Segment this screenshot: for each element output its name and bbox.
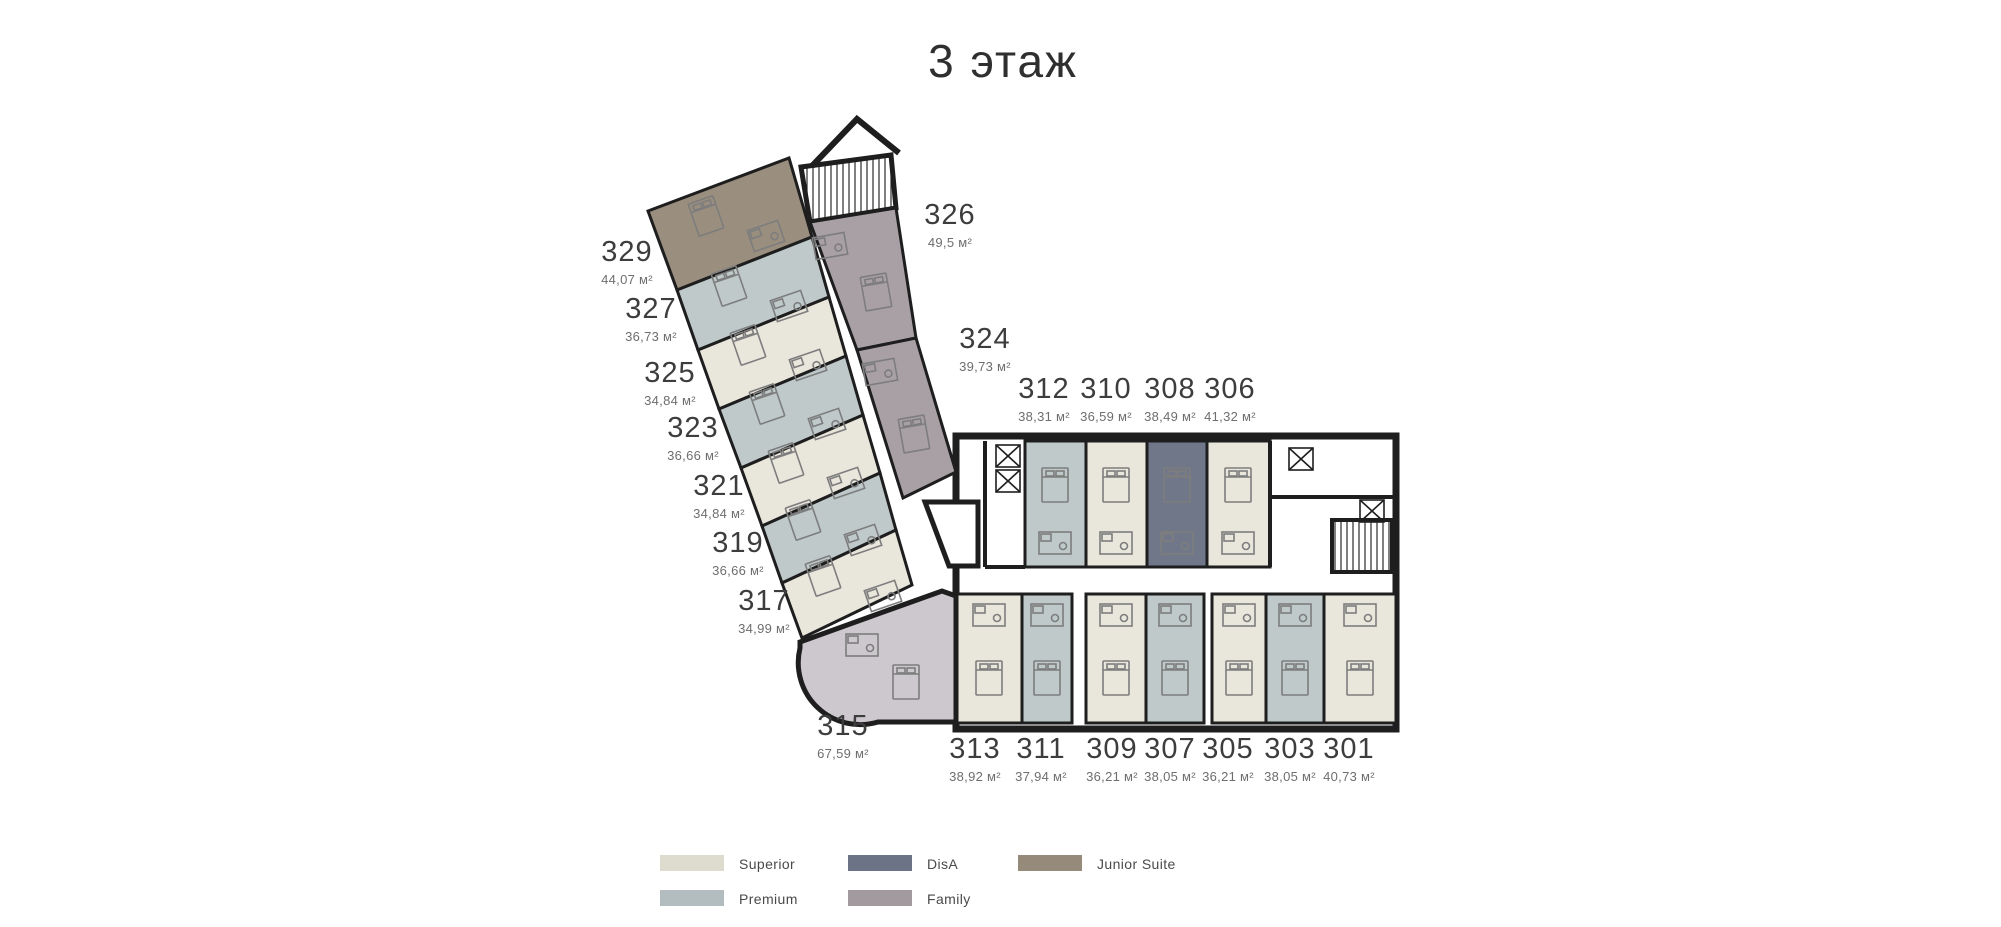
room-area: 36,21 м² bbox=[1202, 769, 1254, 784]
east-wing-top-row bbox=[1025, 441, 1270, 567]
room-label-321[interactable]: 32134,84 м² bbox=[693, 472, 745, 521]
east-wing-bottom-row bbox=[956, 594, 1396, 723]
elevator-icon bbox=[1289, 448, 1313, 470]
room-306-shape[interactable] bbox=[1207, 441, 1270, 567]
room-311-shape[interactable] bbox=[1022, 594, 1072, 723]
room-312-shape[interactable] bbox=[1025, 441, 1086, 567]
room-label-324[interactable]: 32439,73 м² bbox=[959, 325, 1011, 374]
room-area: 38,05 м² bbox=[1264, 769, 1316, 784]
legend-swatch-disa bbox=[848, 855, 912, 871]
legend-swatch-premium bbox=[660, 890, 724, 906]
room-area: 38,49 м² bbox=[1144, 409, 1196, 424]
room-label-317[interactable]: 31734,99 м² bbox=[738, 587, 790, 636]
room-label-310[interactable]: 31036,59 м² bbox=[1080, 375, 1132, 424]
legend-swatch-junior-suite bbox=[1018, 855, 1082, 871]
room-number: 310 bbox=[1080, 375, 1132, 404]
room-label-301[interactable]: 30140,73 м² bbox=[1323, 735, 1375, 784]
room-308-shape[interactable] bbox=[1147, 441, 1207, 567]
legend-label: Superior bbox=[739, 856, 795, 872]
room-313-shape[interactable] bbox=[956, 594, 1022, 723]
room-number: 321 bbox=[693, 472, 745, 501]
room-307-shape[interactable] bbox=[1146, 594, 1204, 723]
room-label-319[interactable]: 31936,66 м² bbox=[712, 529, 764, 578]
room-label-327[interactable]: 32736,73 м² bbox=[625, 295, 677, 344]
room-number: 308 bbox=[1144, 375, 1196, 404]
room-area: 34,84 м² bbox=[644, 393, 696, 408]
elevator-icon bbox=[996, 445, 1020, 467]
room-number: 309 bbox=[1086, 735, 1138, 764]
room-number: 315 bbox=[817, 712, 869, 741]
room-number: 305 bbox=[1202, 735, 1254, 764]
room-number: 317 bbox=[738, 587, 790, 616]
room-area: 36,66 м² bbox=[712, 563, 764, 578]
room-area: 38,92 м² bbox=[949, 769, 1001, 784]
room-label-303[interactable]: 30338,05 м² bbox=[1264, 735, 1316, 784]
room-label-326[interactable]: 32649,5 м² bbox=[924, 201, 975, 250]
entry-vestibule bbox=[925, 502, 978, 566]
room-303-shape[interactable] bbox=[1266, 594, 1324, 723]
room-area: 36,21 м² bbox=[1086, 769, 1138, 784]
room-area: 39,73 м² bbox=[959, 359, 1011, 374]
elevator-icon bbox=[996, 470, 1020, 492]
room-area: 41,32 м² bbox=[1204, 409, 1256, 424]
stairs-east-icon bbox=[1332, 520, 1392, 572]
room-area: 49,5 м² bbox=[924, 235, 975, 250]
room-label-309[interactable]: 30936,21 м² bbox=[1086, 735, 1138, 784]
room-label-313[interactable]: 31338,92 м² bbox=[949, 735, 1001, 784]
room-number: 312 bbox=[1018, 375, 1070, 404]
room-number: 311 bbox=[1015, 735, 1067, 764]
room-area: 36,59 м² bbox=[1080, 409, 1132, 424]
room-area: 36,66 м² bbox=[667, 448, 719, 463]
room-area: 38,05 м² bbox=[1144, 769, 1196, 784]
room-number: 306 bbox=[1204, 375, 1256, 404]
room-number: 319 bbox=[712, 529, 764, 558]
room-number: 327 bbox=[625, 295, 677, 324]
room-number: 329 bbox=[601, 238, 653, 267]
legend-swatch-family bbox=[848, 890, 912, 906]
room-label-315[interactable]: 31567,59 м² bbox=[817, 712, 869, 761]
room-label-307[interactable]: 30738,05 м² bbox=[1144, 735, 1196, 784]
room-area: 44,07 м² bbox=[601, 272, 653, 287]
floor-plan-svg bbox=[600, 95, 1440, 775]
room-area: 37,94 м² bbox=[1015, 769, 1067, 784]
room-area: 67,59 м² bbox=[817, 746, 869, 761]
room-label-308[interactable]: 30838,49 м² bbox=[1144, 375, 1196, 424]
room-number: 325 bbox=[644, 359, 696, 388]
room-number: 307 bbox=[1144, 735, 1196, 764]
room-301-shape[interactable] bbox=[1324, 594, 1396, 723]
room-area: 38,31 м² bbox=[1018, 409, 1070, 424]
room-label-325[interactable]: 32534,84 м² bbox=[644, 359, 696, 408]
legend-label: Family bbox=[927, 891, 971, 907]
legend-label: DisA bbox=[927, 856, 958, 872]
room-305-shape[interactable] bbox=[1212, 594, 1266, 723]
room-number: 313 bbox=[949, 735, 1001, 764]
room-309-shape[interactable] bbox=[1086, 594, 1146, 723]
room-number: 324 bbox=[959, 325, 1011, 354]
room-label-323[interactable]: 32336,66 м² bbox=[667, 414, 719, 463]
room-number: 303 bbox=[1264, 735, 1316, 764]
legend-label: Junior Suite bbox=[1097, 856, 1176, 872]
room-number: 326 bbox=[924, 201, 975, 230]
room-label-312[interactable]: 31238,31 м² bbox=[1018, 375, 1070, 424]
room-area: 34,84 м² bbox=[693, 506, 745, 521]
legend-swatch-superior bbox=[660, 855, 724, 871]
room-area: 36,73 м² bbox=[625, 329, 677, 344]
floor-plan-page: 3 этаж bbox=[0, 0, 2001, 927]
room-area: 34,99 м² bbox=[738, 621, 790, 636]
room-label-305[interactable]: 30536,21 м² bbox=[1202, 735, 1254, 784]
room-area: 40,73 м² bbox=[1323, 769, 1375, 784]
room-number: 301 bbox=[1323, 735, 1375, 764]
room-310-shape[interactable] bbox=[1086, 441, 1147, 567]
room-label-329[interactable]: 32944,07 м² bbox=[601, 238, 653, 287]
room-number: 323 bbox=[667, 414, 719, 443]
legend-label: Premium bbox=[739, 891, 798, 907]
room-label-311[interactable]: 31137,94 м² bbox=[1015, 735, 1067, 784]
page-title: 3 этаж bbox=[928, 34, 1078, 88]
room-label-306[interactable]: 30641,32 м² bbox=[1204, 375, 1256, 424]
